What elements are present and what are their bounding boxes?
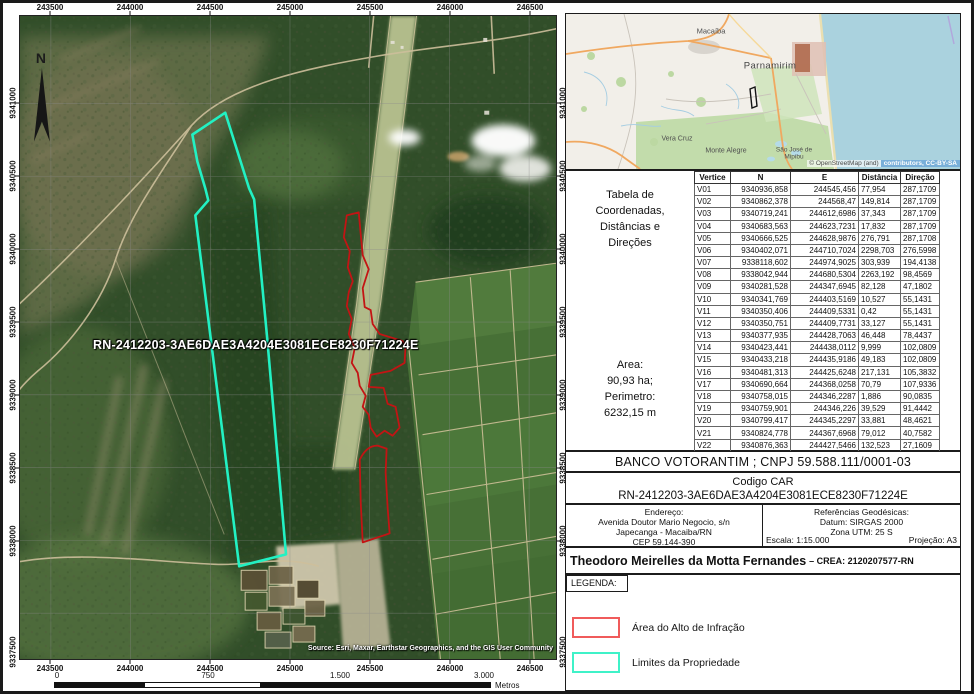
table-cell: 287,1709 — [901, 208, 940, 220]
table-cell: V04 — [695, 220, 731, 232]
area-label: Area: — [566, 357, 694, 373]
table-cell: 149,814 — [859, 196, 901, 208]
grid-tick — [15, 322, 19, 323]
table-cell: 244710,7024 — [791, 244, 859, 256]
table-cell: 33,127 — [859, 317, 901, 329]
table-cell: 70,79 — [859, 378, 901, 390]
table-cell: 9340799,417 — [731, 415, 791, 427]
legend-item-label: Limites da Propriedade — [632, 657, 740, 669]
grid-tick — [210, 660, 211, 664]
table-cell: 9340876,363 — [731, 439, 791, 451]
table-cell: 90,0835 — [901, 390, 940, 402]
table-row: V219340824,778244367,696879,01240,7582 — [695, 427, 940, 439]
grid-tick — [557, 249, 561, 250]
table-cell: 9338042,944 — [731, 269, 791, 281]
locator-inset-map: Macaíba Parnamirim Vera Cruz Monte Alegr… — [565, 13, 961, 170]
inset-place-label: Macaíba — [697, 27, 726, 36]
table-cell: 46,448 — [859, 330, 901, 342]
grid-tick — [530, 660, 531, 664]
table-cell: 9340377,935 — [731, 330, 791, 342]
table-cell: 9340666,525 — [731, 232, 791, 244]
table-cell: 55,1431 — [901, 317, 940, 329]
area-value: 90,93 ha; — [566, 373, 694, 389]
table-cell: 244409,5331 — [791, 305, 859, 317]
table-cell: V19 — [695, 403, 731, 415]
grid-tick — [50, 660, 51, 664]
scale-bar-segment — [55, 683, 145, 687]
grid-tick — [15, 249, 19, 250]
grid-tick — [130, 660, 131, 664]
inset-place-label: Monte Alegre — [705, 148, 746, 155]
table-cell: V17 — [695, 378, 731, 390]
legend-item-infraction: Área do Alto de Infração — [572, 617, 745, 638]
address-line: Japecanga - Macaiba/RN — [566, 527, 762, 537]
table-cell: 0,42 — [859, 305, 901, 317]
table-cell: 244428,7063 — [791, 330, 859, 342]
table-cell: 244680,5304 — [791, 269, 859, 281]
osm-attribution-text: © OpenStreetMap (and) — [807, 160, 880, 167]
table-row: V089338042,944244680,53042263,19298,4569 — [695, 269, 940, 281]
property-swatch — [572, 652, 620, 673]
grid-tick — [557, 468, 561, 469]
legend-title: LEGENDA: — [566, 575, 628, 592]
table-cell: V14 — [695, 342, 731, 354]
geo-references-cell: Referências Geodésicas: Datum: SIRGAS 20… — [763, 505, 960, 546]
table-cell: V16 — [695, 366, 731, 378]
car-code-row: Codigo CAR RN-2412203-3AE6DAE3A4204E3081… — [565, 472, 961, 504]
table-cell: 2263,192 — [859, 269, 901, 281]
grid-tick — [450, 11, 451, 15]
table-cell: 244568,47 — [791, 196, 859, 208]
grid-tick — [15, 468, 19, 469]
grid-label-bottom: 245500 — [357, 664, 384, 673]
legend-item-property: Limites da Propriedade — [572, 652, 740, 673]
table-cell: 79,012 — [859, 427, 901, 439]
geo-scale-projection: Escala: 1:15.000 Projeção: A3 — [763, 535, 960, 545]
table-cell: 102,0809 — [901, 342, 940, 354]
table-cell: 9340758,015 — [731, 390, 791, 402]
table-caption-cell: Tabela de Coordenadas, Distâncias e Dire… — [566, 171, 694, 450]
table-cell: V13 — [695, 330, 731, 342]
info-panel: Macaíba Parnamirim Vera Cruz Monte Alegr… — [565, 13, 961, 691]
table-cell: 244346,226 — [791, 403, 859, 415]
table-cell: V20 — [695, 415, 731, 427]
table-cell: V05 — [695, 232, 731, 244]
col-header-e: E — [791, 172, 859, 184]
scale-bar — [54, 682, 491, 688]
table-cell: 244409,7731 — [791, 317, 859, 329]
table-cell: 55,1431 — [901, 305, 940, 317]
table-cell: 9340423,441 — [731, 342, 791, 354]
responsible-name: Theodoro Meirelles da Motta Fernandes — [570, 554, 806, 568]
area-perimeter: Area: 90,93 ha; Perimetro: 6232,15 m — [566, 357, 694, 421]
infraction-swatch — [572, 617, 620, 638]
table-cell: V09 — [695, 281, 731, 293]
grid-tick — [557, 176, 561, 177]
table-cell: 244545,456 — [791, 184, 859, 196]
table-cell: V06 — [695, 244, 731, 256]
grid-tick — [557, 322, 561, 323]
table-caption: Tabela de Coordenadas, Distâncias e Dire… — [566, 187, 694, 251]
table-cell: 77,954 — [859, 184, 901, 196]
table-cell: 287,1708 — [901, 232, 940, 244]
legend-item-label: Área do Alto de Infração — [632, 622, 745, 634]
table-cell: 78,4437 — [901, 330, 940, 342]
table-cell: 244628,9876 — [791, 232, 859, 244]
caption-line: Tabela de — [566, 187, 694, 203]
table-cell: 10,527 — [859, 293, 901, 305]
table-cell: 276,791 — [859, 232, 901, 244]
address-cell: Endereço: Avenida Doutor Mario Negocio, … — [566, 505, 763, 546]
table-row: V199340759,901244346,22639,52991,4442 — [695, 403, 940, 415]
table-cell: 244425,6248 — [791, 366, 859, 378]
table-cell: 9340862,378 — [731, 196, 791, 208]
inset-place-label: Vera Cruz — [661, 136, 692, 143]
table-cell: 244403,5169 — [791, 293, 859, 305]
table-row: V139340377,935244428,706346,44878,4437 — [695, 330, 940, 342]
table-cell: 194,4138 — [901, 257, 940, 269]
table-cell: 244623,7231 — [791, 220, 859, 232]
table-row: V229340876,363244427,5466132,52327,1609 — [695, 439, 940, 451]
table-cell: 49,183 — [859, 354, 901, 366]
table-cell: 9340690,664 — [731, 378, 791, 390]
ocean — [820, 14, 960, 169]
grid-tick — [557, 103, 561, 104]
table-cell: 287,1709 — [901, 220, 940, 232]
table-cell: 9340341,769 — [731, 293, 791, 305]
grid-tick — [557, 541, 561, 542]
col-header-direcao: Direção — [901, 172, 940, 184]
grid-tick — [15, 176, 19, 177]
table-cell: 9338118,602 — [731, 257, 791, 269]
table-cell: 9340350,751 — [731, 317, 791, 329]
car-title: Codigo CAR — [566, 475, 960, 489]
svg-text:N: N — [36, 50, 46, 66]
property-location-marker — [750, 87, 757, 108]
coordinates-table: Vertice N E Distância Direção V019340936… — [694, 171, 940, 452]
legend-box: LEGENDA: Área do Alto de Infração Limite… — [565, 574, 961, 691]
scale-bar-segment — [145, 683, 260, 687]
table-cell: V18 — [695, 390, 731, 402]
grid-label-bottom: 246000 — [437, 664, 464, 673]
grid-tick — [530, 11, 531, 15]
table-cell: 39,529 — [859, 403, 901, 415]
col-header-n: N — [731, 172, 791, 184]
car-code: RN-2412203-3AE6DAE3A4204E3081ECE8230F712… — [566, 489, 960, 503]
table-cell: 244612,6986 — [791, 208, 859, 220]
table-row: V069340402,071244710,70242298,703276,599… — [695, 244, 940, 256]
grid-tick — [130, 11, 131, 15]
grid-tick — [370, 11, 371, 15]
grid-tick — [15, 103, 19, 104]
table-cell: 17,832 — [859, 220, 901, 232]
table-cell: 102,0809 — [901, 354, 940, 366]
grid-label-bottom: 246500 — [517, 664, 544, 673]
grid-tick — [15, 541, 19, 542]
table-cell: 9340936,858 — [731, 184, 791, 196]
osm-attribution: © OpenStreetMap (and)contributors, CC-BY… — [807, 158, 960, 169]
grid-tick — [450, 660, 451, 664]
grid-tick — [370, 660, 371, 664]
grid-tick — [210, 11, 211, 15]
table-cell: 244368,0258 — [791, 378, 859, 390]
table-cell: V21 — [695, 427, 731, 439]
table-cell: 244346,2287 — [791, 390, 859, 402]
responsible-row: Theodoro Meirelles da Motta Fernandes – … — [565, 547, 961, 574]
grid-tick — [290, 660, 291, 664]
table-cell: 9340481,313 — [731, 366, 791, 378]
map-sheet: N RN-2412203-3AE6DAE3A4204E3081ECE8230F7… — [0, 0, 974, 694]
scale-label-1500: 1.500 — [330, 671, 350, 680]
table-cell: 9340402,071 — [731, 244, 791, 256]
grid-label-bottom: 245000 — [277, 664, 304, 673]
table-cell: 244427,5466 — [791, 439, 859, 451]
table-cell: 9340281,528 — [731, 281, 791, 293]
table-cell: 98,4569 — [901, 269, 940, 281]
table-cell: 91,4442 — [901, 403, 940, 415]
table-cell: 47,1802 — [901, 281, 940, 293]
table-cell: 287,1709 — [901, 184, 940, 196]
table-row: V059340666,525244628,9876276,791287,1708 — [695, 232, 940, 244]
address-line: Avenida Doutor Mario Negocio, s/n — [566, 517, 762, 527]
table-cell: V22 — [695, 439, 731, 451]
table-row: V159340433,218244435,918649,183102,0809 — [695, 354, 940, 366]
geo-projection: Projeção: A3 — [909, 535, 957, 545]
table-cell: 82,128 — [859, 281, 901, 293]
table-cell: V10 — [695, 293, 731, 305]
col-header-vertice: Vertice — [695, 172, 731, 184]
table-row: V169340481,313244425,6248217,131105,3832 — [695, 366, 940, 378]
table-row: V109340341,769244403,516910,52755,1431 — [695, 293, 940, 305]
coords-table-body: V019340936,858244545,45677,954287,1709V0… — [695, 184, 940, 452]
grid-tick — [15, 395, 19, 396]
table-row: V149340423,441244438,01129,999102,0809 — [695, 342, 940, 354]
table-cell: 27,1609 — [901, 439, 940, 451]
table-row: V209340799,417244345,229733,88148,4621 — [695, 415, 940, 427]
table-cell: V11 — [695, 305, 731, 317]
col-header-distancia: Distância — [859, 172, 901, 184]
table-cell: V02 — [695, 196, 731, 208]
table-cell: 9340683,563 — [731, 220, 791, 232]
table-row: V079338118,602244974,9025303,939194,4138 — [695, 257, 940, 269]
owner-text: BANCO VOTORANTIM ; CNPJ 59.588.111/0001-… — [615, 455, 911, 469]
table-row: V019340936,858244545,45677,954287,1709 — [695, 184, 940, 196]
grid-tick — [50, 11, 51, 15]
table-cell: V12 — [695, 317, 731, 329]
main-map-section: N RN-2412203-3AE6DAE3A4204E3081ECE8230F7… — [3, 3, 563, 694]
osm-attribution-license: contributors, CC-BY-SA — [881, 160, 960, 167]
table-cell: 9340350,406 — [731, 305, 791, 317]
table-cell: 303,939 — [859, 257, 901, 269]
table-row: V119340350,406244409,53310,4255,1431 — [695, 305, 940, 317]
table-cell: 244438,0112 — [791, 342, 859, 354]
table-cell: 48,4621 — [901, 415, 940, 427]
table-row: V029340862,378244568,47149,814287,1709 — [695, 196, 940, 208]
table-cell: 107,9336 — [901, 378, 940, 390]
address-line: CEP 59.144-390 — [566, 537, 762, 547]
owner-row: BANCO VOTORANTIM ; CNPJ 59.588.111/0001-… — [565, 451, 961, 472]
property-code-overlay: RN-2412203-3AE6DAE3A4204E3081ECE8230F712… — [93, 338, 418, 352]
table-row: V049340683,563244623,723117,832287,1709 — [695, 220, 940, 232]
table-cell: 55,1431 — [901, 293, 940, 305]
table-cell: 244347,6945 — [791, 281, 859, 293]
geo-title: Referências Geodésicas: — [763, 507, 960, 517]
table-cell: 244974,9025 — [791, 257, 859, 269]
grid-label-bottom: 243500 — [37, 664, 64, 673]
table-cell: 9340759,901 — [731, 403, 791, 415]
table-row: V189340758,015244346,22871,88690,0835 — [695, 390, 940, 402]
inset-basemap — [566, 14, 960, 169]
scale-bar-segment — [260, 683, 490, 687]
geo-datum: Datum: SIRGAS 2000 — [763, 517, 960, 527]
table-row: V099340281,528244347,694582,12847,1802 — [695, 281, 940, 293]
table-cell: 9,999 — [859, 342, 901, 354]
grid-tick — [290, 11, 291, 15]
geo-scale: Escala: 1:15.000 — [766, 535, 829, 545]
table-cell: 37,343 — [859, 208, 901, 220]
table-cell: 1,886 — [859, 390, 901, 402]
table-cell: V15 — [695, 354, 731, 366]
table-header-row: Vertice N E Distância Direção — [695, 172, 940, 184]
table-cell: 9340824,778 — [731, 427, 791, 439]
perimeter-value: 6232,15 m — [566, 405, 694, 421]
grid-label-bottom: 244500 — [197, 664, 224, 673]
table-cell: 105,3832 — [901, 366, 940, 378]
table-row: V039340719,241244612,698637,343287,1709 — [695, 208, 940, 220]
caption-line: Coordenadas, — [566, 203, 694, 219]
imagery-attribution: Source: Esri, Maxar, Earthstar Geographi… — [283, 645, 553, 652]
grid-label-bottom: 244000 — [117, 664, 144, 673]
inset-place-label: Parnamirim — [744, 61, 797, 72]
table-cell: 33,881 — [859, 415, 901, 427]
table-row: V179340690,664244368,025870,79107,9336 — [695, 378, 940, 390]
table-cell: 276,5998 — [901, 244, 940, 256]
table-cell: 9340433,218 — [731, 354, 791, 366]
table-cell: 132,523 — [859, 439, 901, 451]
table-cell: V07 — [695, 257, 731, 269]
responsible-crea: – CREA: 2120207577-RN — [809, 556, 914, 566]
table-row: V129340350,751244409,773133,12755,1431 — [695, 317, 940, 329]
scale-label-3000: 3.000 — [474, 671, 494, 680]
table-cell: V08 — [695, 269, 731, 281]
table-cell: V01 — [695, 184, 731, 196]
table-cell: 217,131 — [859, 366, 901, 378]
table-cell: 40,7582 — [901, 427, 940, 439]
table-cell: 244345,2297 — [791, 415, 859, 427]
table-cell: 9340719,241 — [731, 208, 791, 220]
caption-line: Direções — [566, 235, 694, 251]
table-cell: 287,1709 — [901, 196, 940, 208]
scale-unit-label: Metros — [495, 681, 519, 690]
address-geo-row: Endereço: Avenida Doutor Mario Negocio, … — [565, 504, 961, 547]
grid-label-left: 9337500 — [9, 636, 18, 667]
caption-line: Distâncias e — [566, 219, 694, 235]
table-cell: 244435,9186 — [791, 354, 859, 366]
perimeter-label: Perimetro: — [566, 389, 694, 405]
table-cell: 244367,6968 — [791, 427, 859, 439]
table-cell: 2298,703 — [859, 244, 901, 256]
grid-tick — [557, 395, 561, 396]
coordinates-section: Tabela de Coordenadas, Distâncias e Dire… — [565, 170, 961, 451]
table-cell: V03 — [695, 208, 731, 220]
address-title: Endereço: — [566, 507, 762, 517]
